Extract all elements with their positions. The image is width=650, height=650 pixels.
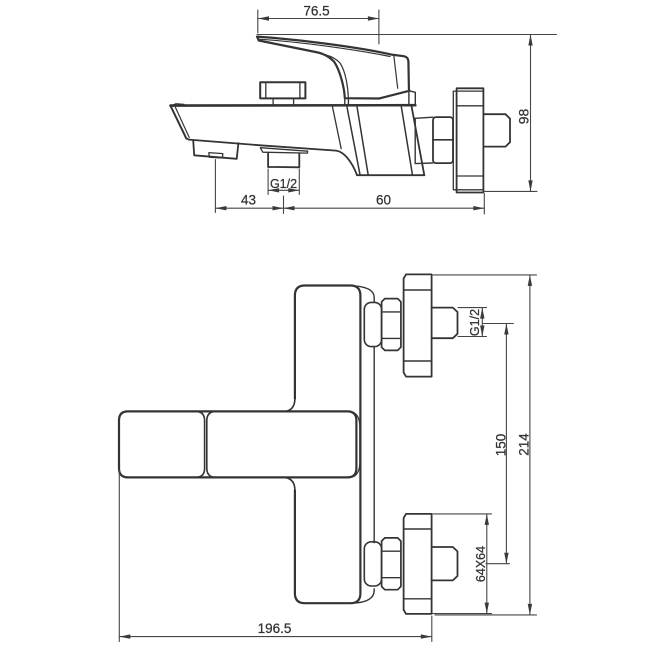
svg-text:214: 214 xyxy=(516,433,531,456)
svg-text:150: 150 xyxy=(493,434,508,457)
svg-text:60: 60 xyxy=(376,193,391,208)
svg-text:43: 43 xyxy=(241,193,256,208)
svg-text:196.5: 196.5 xyxy=(258,621,292,636)
svg-text:64X64: 64X64 xyxy=(474,546,488,582)
svg-text:G1/2: G1/2 xyxy=(468,309,482,336)
svg-text:G1/2: G1/2 xyxy=(270,177,297,191)
svg-text:76.5: 76.5 xyxy=(303,4,329,19)
svg-text:98: 98 xyxy=(515,109,531,125)
